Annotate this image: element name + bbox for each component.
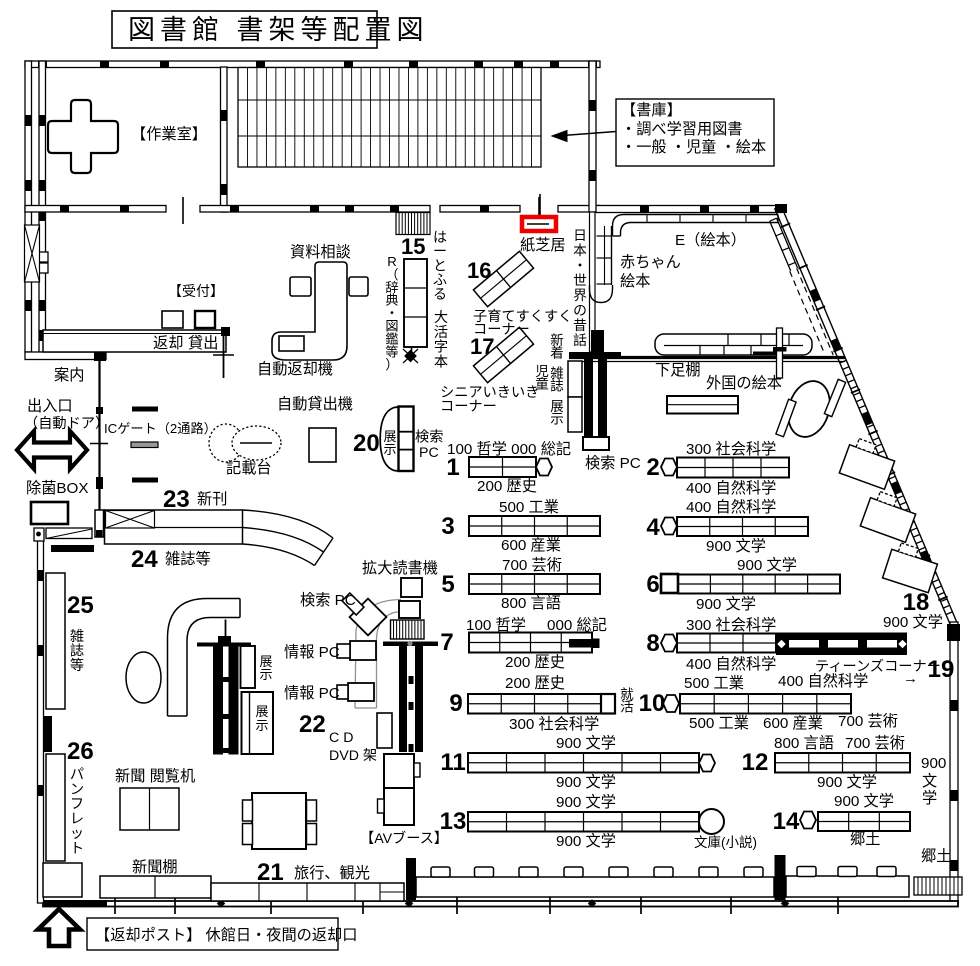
svg-text:5: 5 [441, 571, 454, 598]
svg-text:郷土: 郷土 [921, 848, 951, 865]
svg-text:17: 17 [470, 334, 494, 359]
svg-text:11: 11 [440, 749, 465, 776]
svg-text:本: 本 [434, 354, 448, 370]
svg-text:話: 話 [573, 332, 587, 348]
svg-text:外国の絵本: 外国の絵本 [706, 375, 782, 392]
svg-text:18: 18 [903, 589, 930, 616]
svg-text:600 産業: 600 産業 [763, 715, 823, 732]
svg-text:ICゲート（2通路）: ICゲート（2通路） [104, 421, 217, 436]
svg-text:16: 16 [467, 258, 491, 283]
svg-text:字: 字 [434, 340, 448, 356]
svg-text:自動返却機: 自動返却機 [257, 361, 333, 378]
svg-text:15: 15 [401, 234, 425, 259]
svg-text:フ: フ [70, 797, 84, 813]
svg-text:400 自然科学: 400 自然科学 [686, 480, 776, 497]
svg-text:示: 示 [259, 667, 272, 682]
svg-text:示: 示 [550, 412, 564, 427]
svg-text:等: 等 [70, 657, 84, 674]
svg-text:200 歴史: 200 歴史 [505, 675, 565, 692]
svg-text:絵本: 絵本 [620, 273, 650, 290]
svg-text:検索 PC: 検索 PC [585, 455, 641, 472]
svg-text:900 文学: 900 文学 [883, 614, 943, 631]
svg-text:新聞棚: 新聞棚 [132, 859, 178, 876]
svg-text:C D: C D [329, 730, 353, 746]
svg-text:DVD 架: DVD 架 [329, 748, 377, 764]
svg-text:新刊: 新刊 [197, 491, 227, 508]
svg-text:着: 着 [550, 345, 564, 361]
svg-text:3: 3 [441, 513, 454, 540]
svg-text:活: 活 [434, 325, 448, 341]
svg-text:大: 大 [434, 310, 448, 326]
svg-text:記載台: 記載台 [226, 460, 272, 477]
svg-text:400 自然科学: 400 自然科学 [686, 656, 776, 673]
svg-text:900 文学: 900 文学 [696, 596, 756, 613]
svg-text:100 哲学 000 総記: 100 哲学 000 総記 [447, 441, 571, 458]
svg-text:【受付】: 【受付】 [168, 283, 224, 299]
svg-text:200 歴史: 200 歴史 [477, 478, 537, 495]
svg-text:レ: レ [70, 811, 84, 827]
svg-text:情報 PC: 情報 PC [284, 644, 340, 661]
svg-text:900 文学: 900 文学 [556, 774, 616, 791]
svg-text:900 文学: 900 文学 [556, 735, 616, 752]
svg-text:500 工業: 500 工業 [499, 499, 559, 516]
svg-text:紙芝居: 紙芝居 [520, 237, 566, 254]
svg-text:200 歴史: 200 歴史 [505, 654, 565, 671]
svg-text:日: 日 [573, 228, 587, 243]
svg-text:童: 童 [535, 376, 549, 392]
svg-text:600 産業: 600 産業 [501, 537, 561, 554]
svg-text:800 言語: 800 言語 [774, 735, 834, 752]
svg-text:900 文学: 900 文学 [817, 774, 877, 791]
svg-text:800 言語: 800 言語 [501, 595, 561, 612]
svg-text:E（絵本）: E（絵本） [675, 232, 746, 249]
svg-text:拡大読書機: 拡大読書機 [362, 560, 438, 577]
svg-text:13: 13 [440, 808, 467, 835]
svg-text:26: 26 [67, 738, 94, 765]
svg-text:新聞 閲覧机: 新聞 閲覧机 [115, 768, 195, 785]
svg-text:除菌BOX: 除菌BOX [26, 480, 88, 497]
svg-text:雑誌等: 雑誌等 [165, 550, 211, 568]
svg-text:界: 界 [573, 288, 587, 303]
svg-text:情報 PC: 情報 PC [284, 685, 340, 702]
svg-text:300 社会科学: 300 社会科学 [686, 441, 776, 458]
svg-text:10: 10 [639, 690, 666, 717]
svg-text:900: 900 [921, 755, 946, 772]
svg-text:25: 25 [67, 592, 94, 619]
svg-text:）: ） [385, 357, 398, 372]
svg-text:400 自然科学: 400 自然科学 [686, 499, 776, 516]
svg-text:900 文学: 900 文学 [556, 833, 616, 850]
svg-text:・一般 ・児童 ・絵本: ・一般 ・児童 ・絵本 [621, 138, 766, 156]
svg-text:学: 学 [922, 790, 937, 807]
svg-text:雑: 雑 [70, 629, 84, 645]
svg-text:900 文学: 900 文学 [556, 794, 616, 811]
svg-text:昔: 昔 [573, 318, 587, 333]
svg-text:700 芸術: 700 芸術 [845, 735, 905, 752]
svg-text:500 工業: 500 工業 [689, 715, 749, 732]
svg-text:21: 21 [257, 859, 284, 886]
svg-text:赤ちゃん: 赤ちゃん [620, 254, 681, 271]
svg-text:000 総記: 000 総記 [547, 617, 607, 634]
svg-text:9: 9 [449, 690, 462, 717]
svg-text:の: の [573, 303, 587, 318]
svg-text:コーナー: コーナー [440, 399, 497, 415]
svg-text:（自動ドア）: （自動ドア） [24, 416, 109, 432]
svg-text:24: 24 [131, 546, 158, 573]
svg-text:旅行、観光: 旅行、観光 [294, 865, 370, 882]
svg-text:ッ: ッ [70, 826, 84, 842]
svg-text:23: 23 [163, 486, 190, 513]
svg-text:→: → [903, 670, 918, 687]
svg-text:・調べ学習用図書: ・調べ学習用図書 [621, 121, 743, 138]
svg-text:資料相談: 資料相談 [290, 244, 351, 261]
svg-text:ティーンズコーナー: ティーンズコーナー [815, 659, 941, 675]
svg-text:誌: 誌 [550, 379, 564, 394]
svg-text:【書庫】: 【書庫】 [621, 102, 682, 119]
svg-text:る: る [433, 286, 447, 302]
svg-text:7: 7 [440, 629, 453, 656]
svg-text:誌: 誌 [70, 644, 84, 660]
svg-text:20: 20 [353, 430, 380, 457]
svg-text:300 社会科学: 300 社会科学 [509, 716, 599, 733]
svg-text:本: 本 [573, 243, 587, 258]
svg-text:6: 6 [646, 571, 659, 598]
svg-text:500 工業: 500 工業 [684, 675, 744, 692]
svg-text:900 文学: 900 文学 [737, 557, 797, 574]
svg-text:文: 文 [922, 773, 937, 790]
svg-text:PC: PC [419, 445, 439, 461]
svg-text:【AVブース】: 【AVブース】 [360, 830, 448, 847]
svg-text:【返却ポスト】 休館日・夜間の返却口: 【返却ポスト】 休館日・夜間の返却口 [95, 927, 357, 944]
svg-text:300 社会科学: 300 社会科学 [686, 617, 776, 634]
svg-text:8: 8 [646, 630, 659, 657]
svg-text:ト: ト [70, 841, 84, 857]
svg-text:返却: 返却 [153, 335, 183, 352]
svg-text:400 自然科学: 400 自然科学 [778, 673, 868, 690]
svg-text:【作業室】: 【作業室】 [131, 126, 207, 143]
svg-text:ン: ン [70, 782, 84, 798]
svg-text:出入口: 出入口 [27, 398, 73, 415]
svg-text:14: 14 [773, 808, 800, 835]
svg-text:下足棚: 下足棚 [655, 362, 701, 379]
svg-text:・: ・ [573, 258, 587, 273]
svg-text:700 芸術: 700 芸術 [838, 713, 898, 730]
svg-text:22: 22 [299, 711, 326, 738]
svg-text:示: 示 [383, 442, 396, 457]
svg-text:示: 示 [255, 718, 268, 733]
svg-text:4: 4 [646, 514, 660, 541]
svg-text:展: 展 [255, 704, 268, 719]
svg-text:900 文学: 900 文学 [706, 538, 766, 555]
svg-text:案内: 案内 [54, 366, 84, 384]
svg-text:検索 PC: 検索 PC [300, 592, 356, 609]
svg-text:700 芸術: 700 芸術 [502, 557, 562, 574]
svg-text:検索: 検索 [415, 429, 443, 446]
svg-text:1: 1 [446, 454, 459, 481]
svg-text:自動貸出機: 自動貸出機 [277, 396, 353, 413]
svg-text:郷土: 郷土 [850, 831, 880, 848]
svg-text:100 哲学: 100 哲学 [466, 617, 526, 634]
svg-text:900 文学: 900 文学 [834, 793, 894, 810]
svg-text:パ: パ [70, 767, 84, 783]
svg-text:図書館 書架等配置図: 図書館 書架等配置図 [128, 15, 429, 45]
svg-text:2: 2 [646, 454, 659, 481]
svg-text:世: 世 [573, 273, 587, 288]
svg-text:12: 12 [742, 749, 769, 776]
svg-text:文庫(小説): 文庫(小説) [694, 835, 757, 850]
svg-text:貸出: 貸出 [188, 335, 218, 352]
svg-text:活: 活 [620, 700, 634, 715]
